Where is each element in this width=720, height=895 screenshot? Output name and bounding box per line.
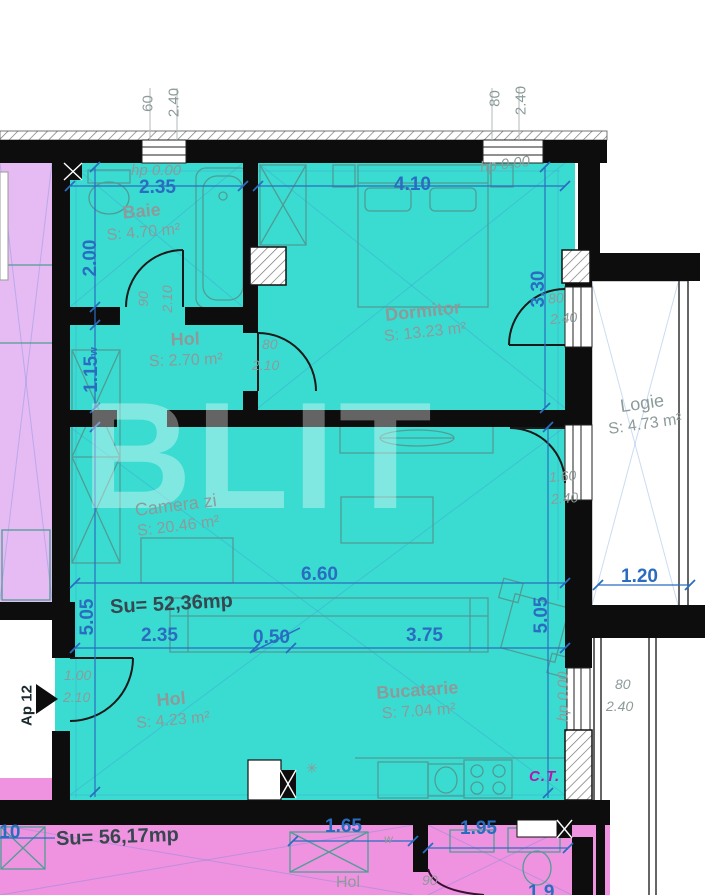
dim-bottom-2: 0.50 xyxy=(253,627,290,649)
dim-logie-width: 1.20 xyxy=(621,566,658,588)
apartment-number: Ap 12 xyxy=(19,681,36,731)
door-dim: 90 xyxy=(135,279,151,319)
dim-hol-height: 1.15w xyxy=(81,342,103,398)
dim-pink-2: 1.95 xyxy=(460,818,497,840)
dim-pink-left-partial: .10 xyxy=(0,822,20,844)
door-dim: 80 xyxy=(262,336,278,352)
window-dim-width: 80 xyxy=(487,79,504,119)
vent-icon: ✳ xyxy=(306,760,318,777)
door-dim: 2.10 xyxy=(159,277,175,321)
window-dim-height: 2.40 xyxy=(166,81,183,125)
column xyxy=(250,247,286,285)
window-dim-height: 2.40 xyxy=(513,79,530,123)
door-dim: 2.10 xyxy=(252,357,279,373)
window-dim: 80 xyxy=(615,676,631,692)
dim-dormitor-right-height: 3.30 xyxy=(528,264,550,314)
room-label-hol: HolS: 2.70 m² xyxy=(137,326,233,372)
floor-plan: BLIT 60 2.40 80 2.40 hp 0.00 hp 0.00 hp … xyxy=(0,0,720,895)
window-dim: 2.40 xyxy=(606,698,633,714)
door-dim: 90 xyxy=(422,872,438,888)
door-dim: 2.10 xyxy=(63,689,90,705)
dim-pink-right-partial: 1.9 xyxy=(528,882,554,895)
dim-dormitor-width: 4.10 xyxy=(394,174,431,196)
dim-bottom-1: 2.35 xyxy=(141,625,178,647)
window-dim-width: 60 xyxy=(140,84,157,124)
shaft xyxy=(565,730,592,800)
door-dim: 1.60 xyxy=(548,467,576,485)
level-label: hp 0.00 xyxy=(555,666,572,728)
dim-sub: w xyxy=(384,832,393,846)
logie-floor xyxy=(592,281,688,607)
door-dim: 1.00 xyxy=(64,667,91,683)
room-label-hol-bottom: Hol xyxy=(336,874,360,892)
room-label-bucatarie: BucatarieS: 7.04 m² xyxy=(367,676,470,725)
door-dim: 80 xyxy=(547,289,564,306)
dim-right-height: 5.05 xyxy=(531,590,553,640)
door-dim: 2.40 xyxy=(549,309,578,327)
column xyxy=(562,250,590,283)
dim-pink-1: 1.65 xyxy=(325,816,362,838)
dim-baie-width: 2.35 xyxy=(139,177,176,199)
dim-bottom-3: 3.75 xyxy=(406,625,443,647)
lower-area-label: Su= 56,17mp xyxy=(56,824,180,851)
room-label-baie: BaieS: 4.70 m² xyxy=(93,196,191,247)
boiler-label: C.T. xyxy=(529,768,560,785)
entrance-arrow-icon xyxy=(36,684,60,714)
room-label-hol-2: HolS: 4.23 m² xyxy=(124,684,219,734)
door-dim: 2.40 xyxy=(550,489,578,507)
dim-total-width: 6.60 xyxy=(301,564,338,586)
dim-left-height: 5.05 xyxy=(77,592,99,642)
